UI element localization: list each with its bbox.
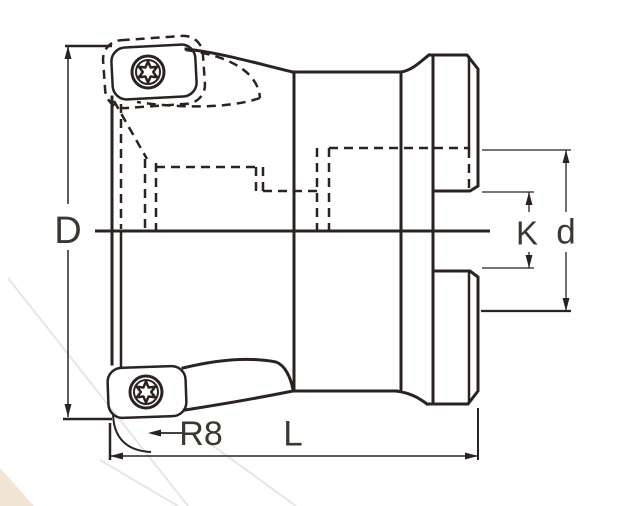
label-d: d	[556, 213, 575, 252]
hidden-bore-lines	[114, 50, 469, 230]
arrow-up-icon	[563, 150, 570, 163]
cutter-body-outline	[112, 49, 478, 452]
bottom-insert-body	[107, 366, 187, 419]
arrow-up-icon	[526, 192, 533, 205]
arrow-left-icon	[110, 453, 123, 460]
label-L: L	[283, 415, 302, 454]
arrow-down-icon	[65, 404, 72, 417]
arrow-up-icon	[65, 46, 72, 59]
torx-screw-icon	[130, 376, 162, 408]
watermark	[0, 278, 296, 506]
milling-cutter-diagram: D L K d R8	[0, 0, 639, 506]
label-R8: R8	[179, 415, 222, 453]
label-D: D	[54, 210, 81, 252]
arrow-down-icon	[563, 298, 570, 311]
dimension-R8: R8	[148, 415, 223, 453]
top-insert	[102, 35, 206, 110]
label-K: K	[516, 215, 538, 252]
arrow-left-icon	[148, 430, 161, 437]
bottom-insert	[107, 366, 187, 419]
dimension-K: K	[482, 192, 538, 268]
arrow-right-icon	[465, 453, 478, 460]
technical-drawing-canvas: D L K d R8	[0, 0, 639, 506]
torx-screw-icon	[132, 56, 164, 88]
arrow-down-icon	[526, 255, 533, 268]
